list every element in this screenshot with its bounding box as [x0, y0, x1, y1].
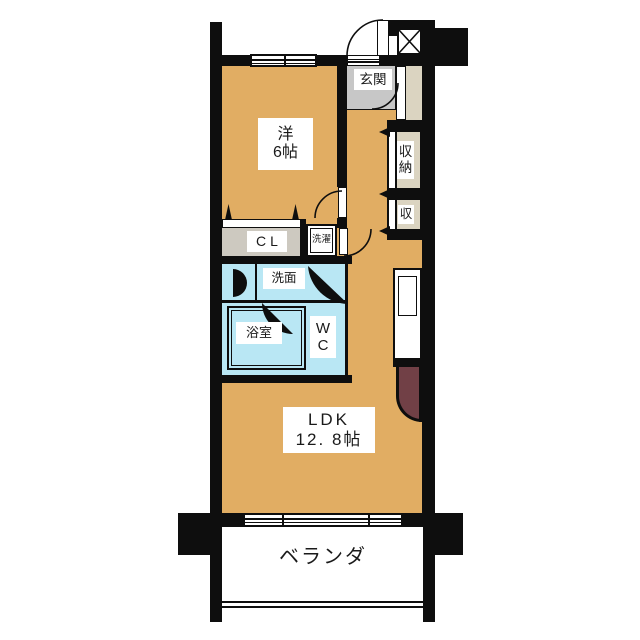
wall-top-right-block — [435, 28, 468, 66]
wall-wet-bottom — [215, 375, 352, 383]
entrance-threshold — [347, 55, 380, 66]
wall-left-protrusion — [178, 513, 210, 555]
washroom-door-leaf — [339, 228, 348, 255]
wall-room-hall — [337, 65, 347, 187]
washroom-label: 洗面 — [263, 268, 305, 289]
wall-right — [422, 20, 435, 622]
veranda-label: ベランダ — [268, 542, 378, 572]
wall-room-hall-lower — [337, 218, 347, 228]
storage-small-door — [389, 200, 397, 229]
wall-closet-divider — [387, 190, 435, 198]
toilet-label: W C — [310, 316, 336, 358]
wall-bottom-right-seg — [403, 513, 435, 527]
ldk-label: LDK 12. 8帖 — [283, 407, 375, 453]
storage-large-door — [389, 132, 397, 188]
western-room-label: 洋 6帖 — [258, 118, 313, 170]
wall-bottom-left-seg — [210, 513, 243, 527]
wall-cl-bottom — [215, 256, 352, 264]
laundry-space: 洗濯 — [306, 224, 337, 257]
wall-left — [210, 22, 222, 622]
wall-genkan-closet — [387, 120, 435, 130]
window-western-room — [250, 54, 317, 67]
window-ldk-veranda — [243, 513, 403, 527]
wall-closet-bottom — [387, 231, 435, 240]
shoe-cabinet — [396, 66, 406, 120]
washroom-nook-line — [255, 264, 257, 302]
entrance-door-leaf — [377, 20, 389, 56]
entrance-niche — [405, 65, 422, 122]
western-room-door-leaf — [338, 187, 347, 218]
wall-right-protrusion — [435, 513, 463, 555]
storage-small-label: 収 — [398, 205, 414, 224]
wall-door-stub — [388, 20, 397, 36]
entrance-label: 玄関 — [354, 69, 392, 90]
storage-large-label: 収 納 — [397, 141, 414, 179]
veranda-railing — [222, 601, 423, 608]
laundry-label: 洗濯 — [312, 235, 331, 246]
pipe-space-box — [397, 28, 422, 55]
bathroom-label: 浴室 — [236, 322, 282, 344]
closet-cl-label: CL — [247, 231, 287, 252]
closet-cl-door — [222, 219, 302, 228]
wet-area-divider — [222, 300, 348, 303]
floor-plan: 洗濯 — [0, 0, 640, 640]
kitchen-sink — [398, 276, 417, 316]
